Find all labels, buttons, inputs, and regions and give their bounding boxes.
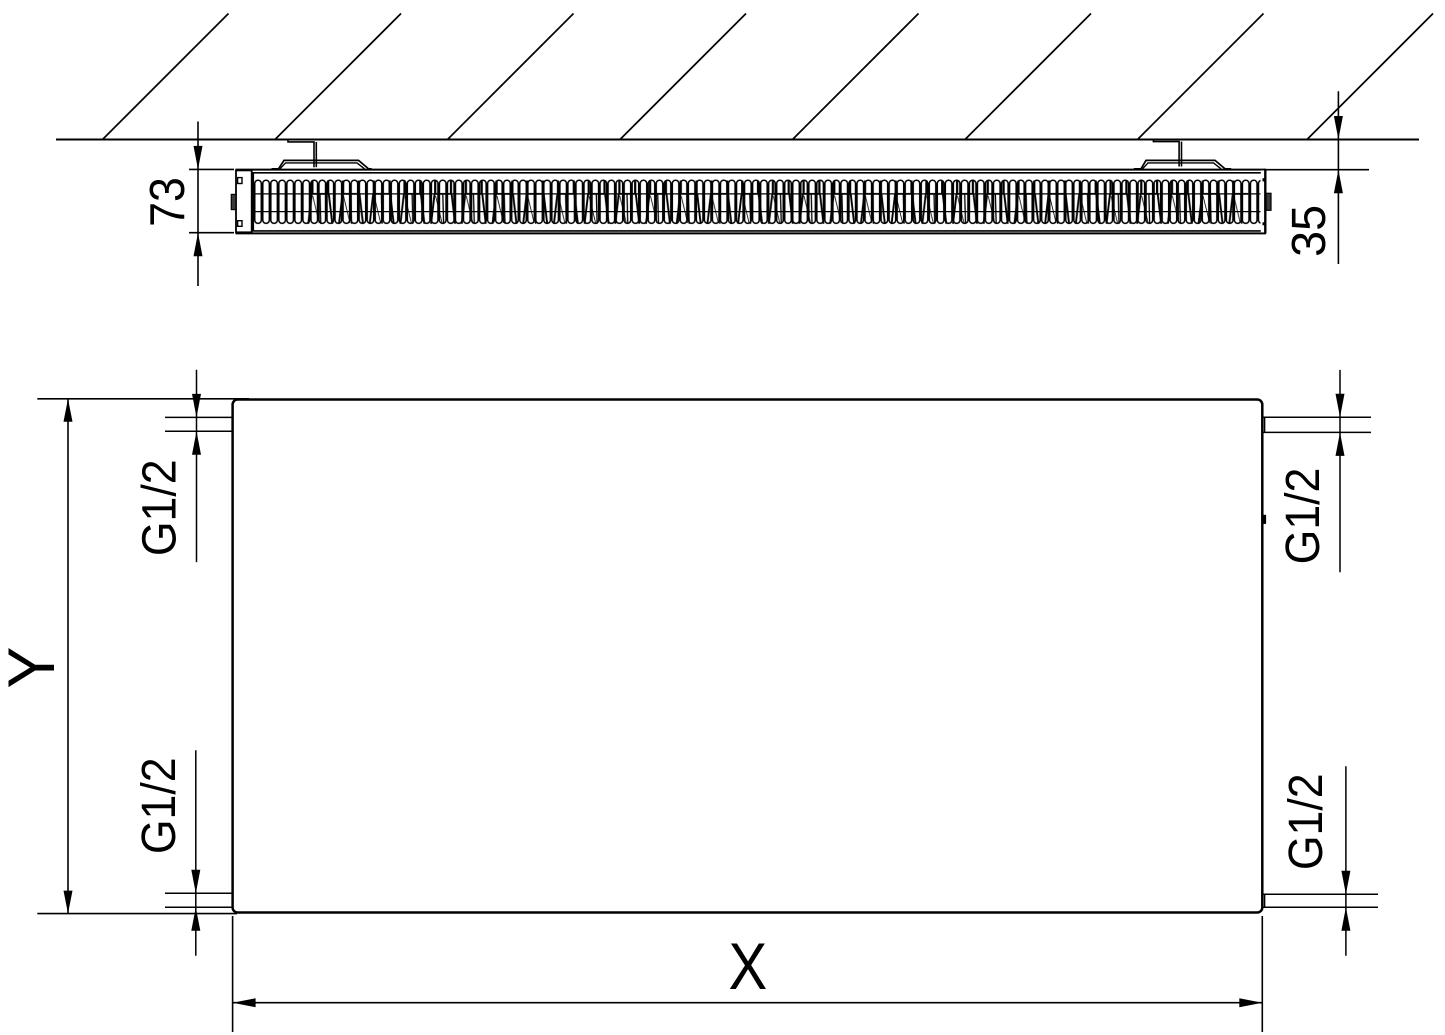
svg-text:X: X <box>729 931 768 1004</box>
svg-text:Y: Y <box>0 647 68 689</box>
svg-text:G1/2: G1/2 <box>131 757 185 854</box>
svg-text:73: 73 <box>139 177 195 227</box>
svg-text:G1/2: G1/2 <box>1279 773 1333 870</box>
svg-text:G1/2: G1/2 <box>132 459 186 556</box>
svg-text:35: 35 <box>1282 205 1336 257</box>
svg-text:G1/2: G1/2 <box>1276 468 1330 565</box>
